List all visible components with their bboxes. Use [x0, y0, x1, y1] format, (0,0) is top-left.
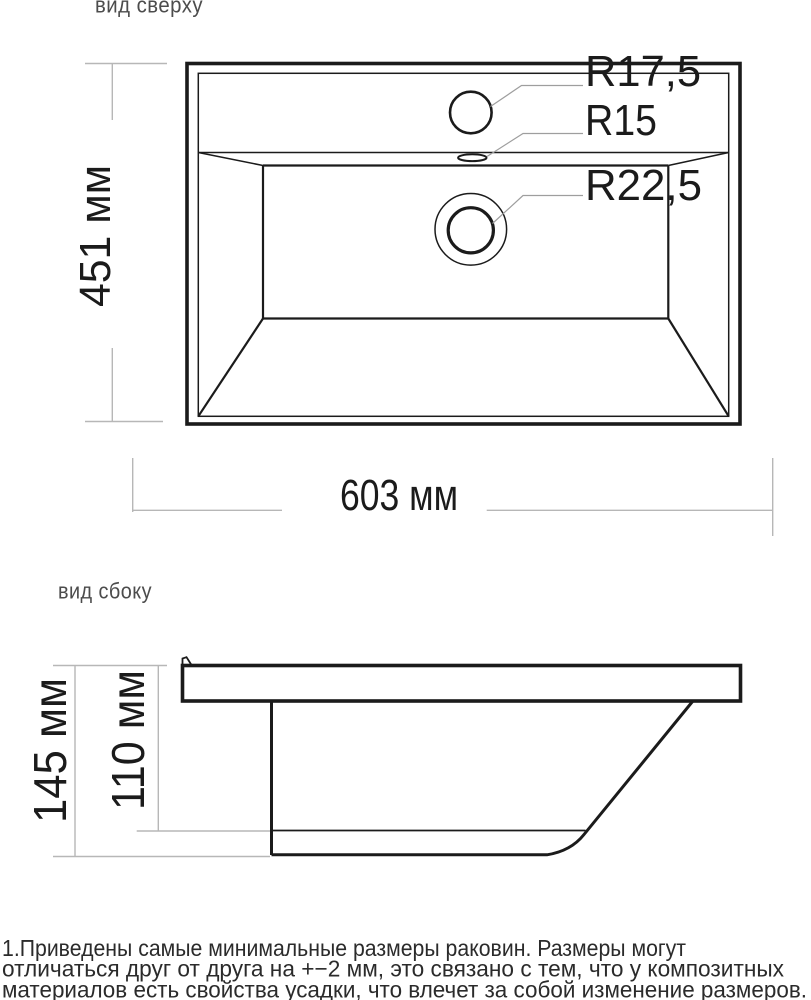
label-total-height-dimension: 145 мм	[24, 678, 76, 823]
faucet-hole-circle	[450, 92, 492, 134]
drawing-svg: R17,5 R15 R22,5 603 мм 451 мм 145 мм 110…	[0, 0, 811, 1000]
side-view-drawing	[183, 657, 741, 855]
label-faucet-radius: R17,5	[585, 47, 701, 96]
sink-outer-outline	[187, 64, 740, 425]
top-view-title: вид сверху	[95, 0, 203, 18]
footer-note: 1.Приведены самые минимальные размеры ра…	[2, 935, 807, 1000]
label-basin-height-dimension: 110 мм	[102, 670, 154, 810]
footer-note-line-3: материалов есть свойства усадки, что вле…	[2, 976, 807, 1000]
basin-front-left-slope	[198, 319, 263, 417]
side-basin-outer-profile	[272, 702, 693, 855]
leader-line-faucet	[491, 86, 584, 107]
overflow-hole-ellipse	[458, 154, 486, 161]
countertop-slab-outline	[183, 666, 741, 702]
sink-dimensions-drawing: R17,5 R15 R22,5 603 мм 451 мм 145 мм 110…	[0, 0, 811, 1000]
drain-inner-circle	[448, 208, 493, 253]
leader-line-drain	[493, 196, 584, 224]
label-drain-radius: R22,5	[585, 161, 702, 210]
deck-left-bevel	[198, 153, 263, 166]
label-overflow-radius: R15	[585, 96, 657, 145]
top-view-drawing	[187, 64, 740, 425]
leader-lines	[487, 86, 583, 224]
radius-labels: R17,5 R15 R22,5 603 мм 451 мм 145 мм 110…	[24, 47, 702, 823]
basin-front-right-slope	[668, 319, 728, 417]
side-view-title: вид сбоку	[58, 579, 152, 604]
label-depth-dimension: 451 мм	[71, 165, 120, 307]
side-view-dimension-lines	[53, 666, 270, 857]
label-width-dimension: 603 мм	[340, 471, 458, 520]
